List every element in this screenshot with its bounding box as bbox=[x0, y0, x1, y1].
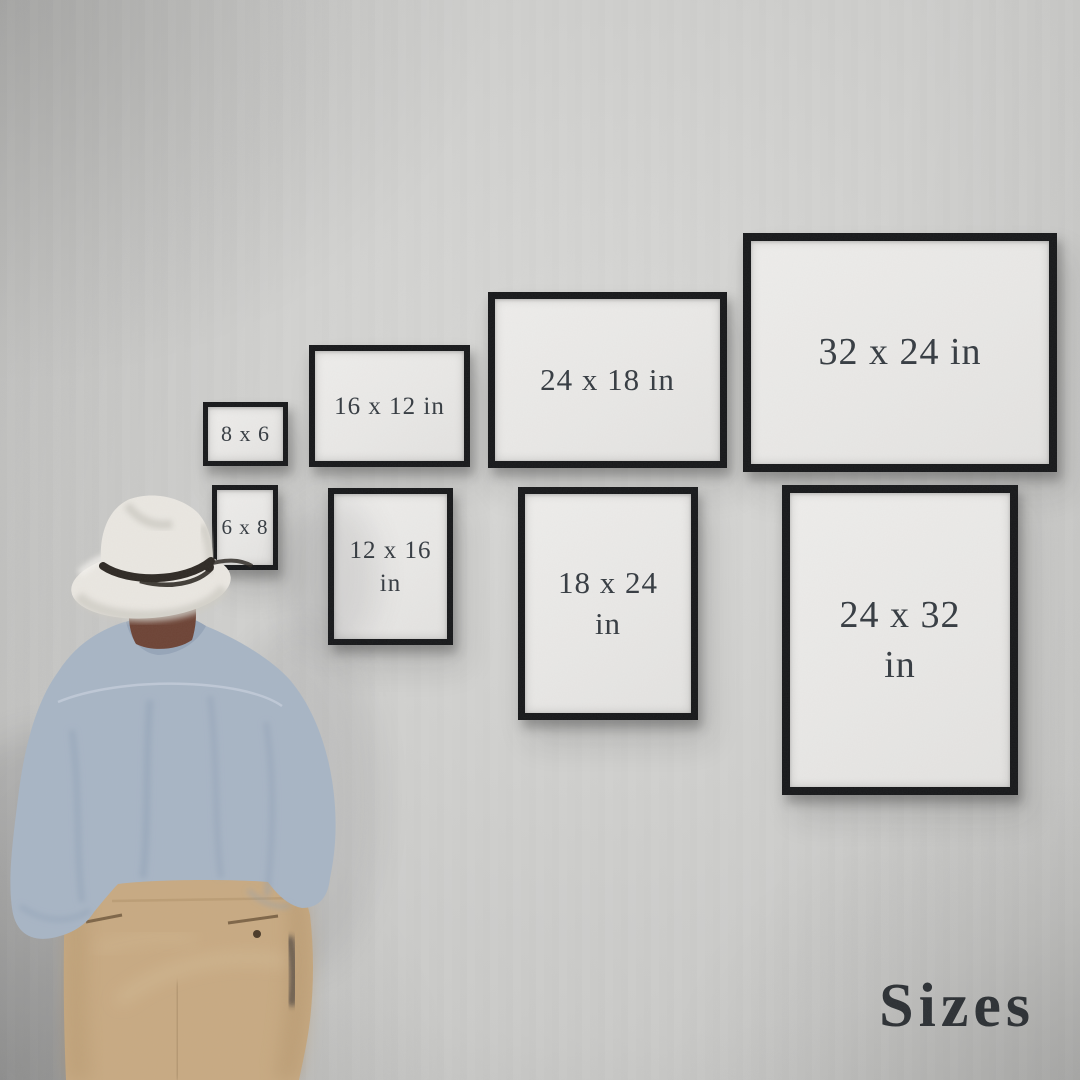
frame-32x24: 32 x 24 in bbox=[743, 233, 1057, 472]
frame-8x6: 8 x 6 bbox=[203, 402, 288, 466]
frame-18x24: 18 x 24in bbox=[518, 487, 698, 720]
frame-face: 32 x 24 in bbox=[751, 241, 1049, 464]
frame-size-label: 24 x 32 bbox=[840, 590, 961, 640]
size-guide-mockup: 8 x 616 x 12 in24 x 18 in32 x 24 in6 x 8… bbox=[0, 0, 1080, 1080]
frame-size-label: in bbox=[380, 567, 401, 600]
frame-face: 6 x 8 bbox=[217, 490, 273, 565]
frame-size-label: 16 x 12 in bbox=[334, 390, 445, 423]
frame-face: 24 x 32in bbox=[790, 493, 1010, 787]
frame-size-label: 24 x 18 in bbox=[540, 360, 675, 401]
frame-face: 12 x 16in bbox=[334, 494, 447, 639]
frame-size-label: 32 x 24 in bbox=[818, 327, 981, 377]
frame-24x32: 24 x 32in bbox=[782, 485, 1018, 795]
frame-size-label: 18 x 24 bbox=[558, 563, 658, 604]
frame-24x18: 24 x 18 in bbox=[488, 292, 727, 468]
frame-12x16: 12 x 16in bbox=[328, 488, 453, 645]
frame-face: 18 x 24in bbox=[525, 494, 691, 713]
frame-face: 16 x 12 in bbox=[315, 351, 464, 461]
frame-face: 24 x 18 in bbox=[495, 299, 720, 461]
frame-wall-grid: 8 x 616 x 12 in24 x 18 in32 x 24 in6 x 8… bbox=[0, 0, 1080, 1080]
frame-size-label: in bbox=[884, 640, 916, 690]
frame-size-label: 12 x 16 bbox=[350, 534, 432, 567]
frame-16x12: 16 x 12 in bbox=[309, 345, 470, 467]
frame-size-label: 6 x 8 bbox=[222, 514, 269, 542]
sizes-title: Sizes bbox=[879, 971, 1035, 1042]
frame-size-label: in bbox=[595, 604, 621, 645]
frame-face: 8 x 6 bbox=[208, 407, 283, 461]
frame-size-label: 8 x 6 bbox=[221, 419, 270, 448]
frame-6x8: 6 x 8 bbox=[212, 485, 278, 570]
